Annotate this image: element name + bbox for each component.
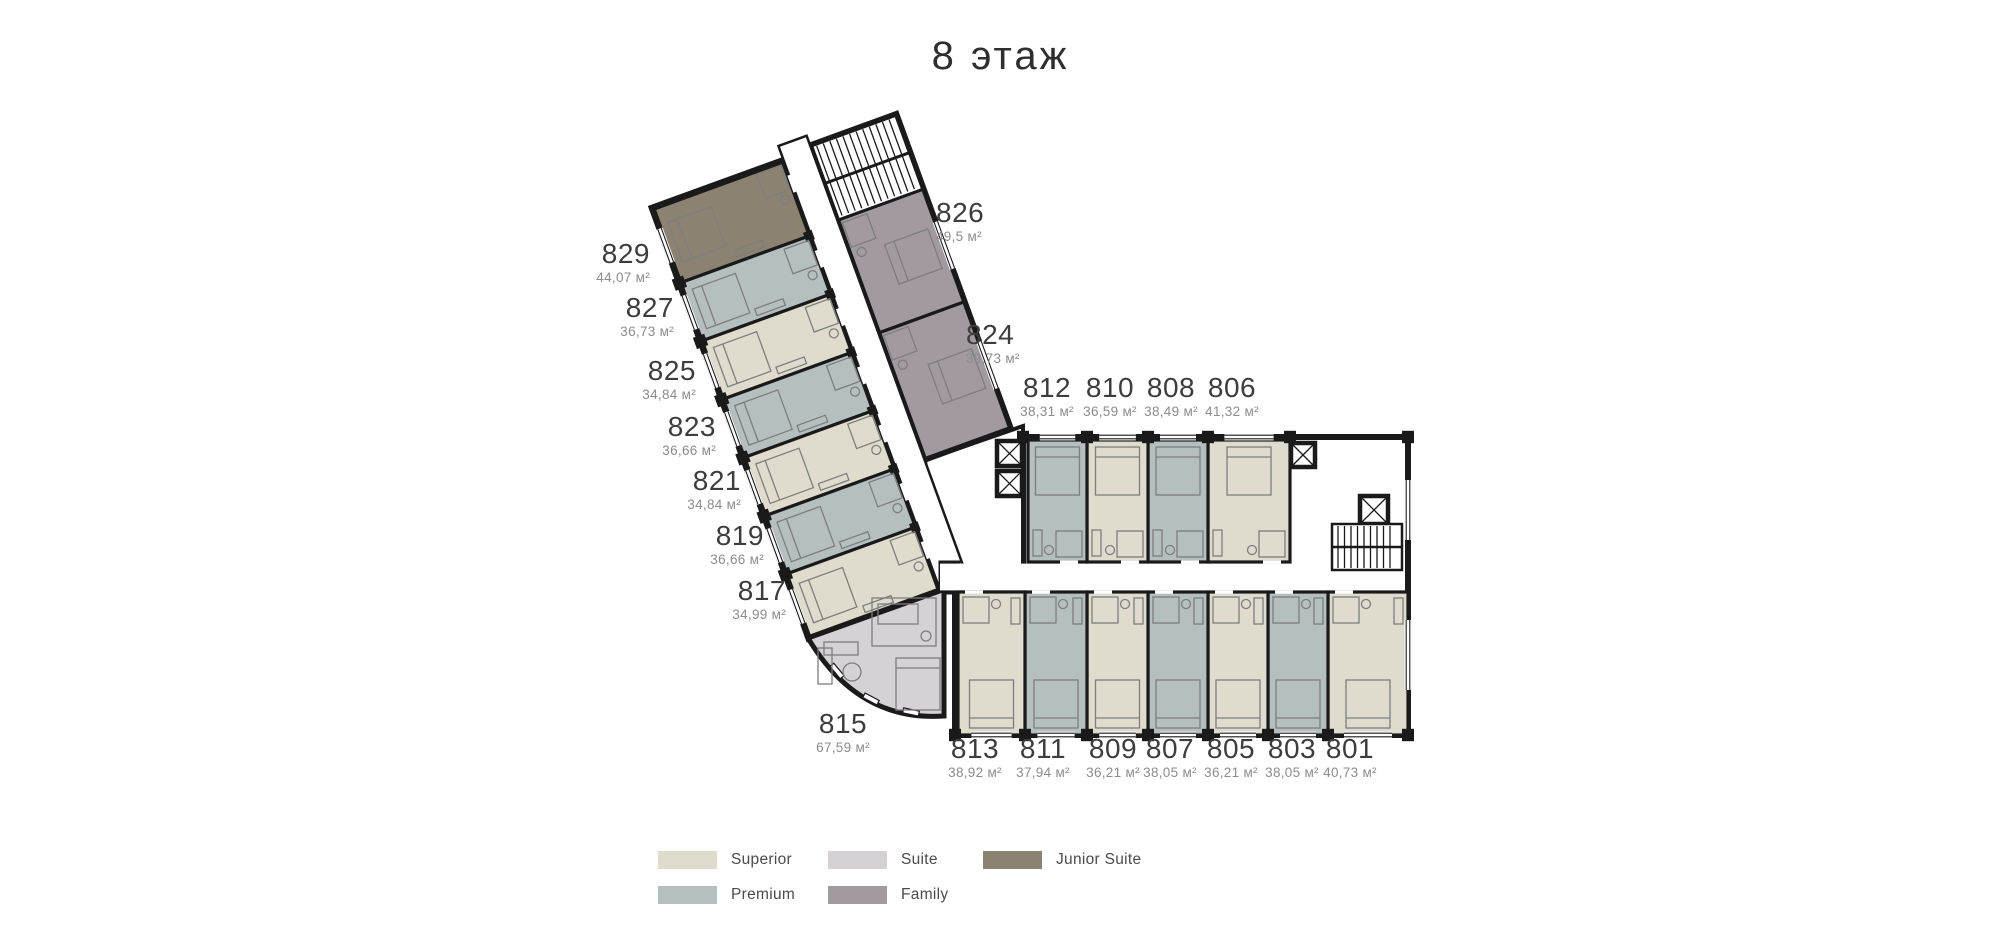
legend-item-family: Family: [828, 877, 983, 912]
room-805[interactable]: [1208, 592, 1268, 735]
legend-label-family: Family: [901, 886, 948, 904]
room-area-824: 39,73 м²: [966, 351, 1020, 366]
room-area-823: 36,66 м²: [662, 443, 716, 458]
legend-item-premium: Premium: [658, 877, 828, 912]
elevator-icon: [997, 471, 1022, 496]
legend-label-junior_suite: Junior Suite: [1056, 851, 1141, 869]
room-area-809: 36,21 м²: [1086, 765, 1140, 780]
room-area-815: 67,59 м²: [816, 740, 870, 755]
room-number-809: 809: [1089, 733, 1137, 764]
room-number-810: 810: [1086, 372, 1134, 403]
room-area-817: 34,99 м²: [732, 607, 786, 622]
legend-swatch-premium: [658, 886, 717, 904]
legend-label-premium: Premium: [731, 886, 795, 904]
legend: SuperiorPremiumSuiteFamilyJunior Suite: [658, 842, 1141, 912]
room-806[interactable]: [1208, 440, 1290, 562]
room-area-801: 40,73 м²: [1323, 765, 1377, 780]
room-area-829: 44,07 м²: [596, 270, 650, 285]
room-number-808: 808: [1147, 372, 1195, 403]
room-area-805: 36,21 м²: [1204, 765, 1258, 780]
room-number-812: 812: [1023, 372, 1071, 403]
room-area-826: 49,5 м²: [936, 229, 982, 244]
room-number-823: 823: [668, 411, 716, 442]
room-number-807: 807: [1146, 733, 1194, 764]
elevator-icon: [997, 441, 1022, 466]
room-number-824: 824: [966, 319, 1014, 350]
room-number-821: 821: [693, 465, 741, 496]
legend-label-suite: Suite: [901, 851, 938, 869]
room-number-819: 819: [716, 520, 764, 551]
room-number-801: 801: [1326, 733, 1374, 764]
elevator-icon: [1360, 496, 1388, 524]
room-number-811: 811: [1020, 733, 1066, 764]
legend-swatch-family: [828, 886, 887, 904]
room-number-815: 815: [819, 708, 867, 739]
room-area-827: 36,73 м²: [620, 324, 674, 339]
room-area-811: 37,94 м²: [1016, 765, 1070, 780]
legend-item-junior_suite: Junior Suite: [983, 842, 1141, 877]
legend-item-superior: Superior: [658, 842, 828, 877]
room-area-808: 38,49 м²: [1144, 404, 1198, 419]
floor-plan-page: 8 этаж 82944,07 м²82736,73 м²82534,84 м²…: [0, 0, 2001, 927]
room-number-829: 829: [602, 238, 650, 269]
legend-label-superior: Superior: [731, 851, 792, 869]
room-area-807: 38,05 м²: [1143, 765, 1197, 780]
room-number-805: 805: [1207, 733, 1255, 764]
legend-swatch-superior: [658, 851, 717, 869]
room-number-817: 817: [738, 575, 786, 606]
room-807[interactable]: [1148, 592, 1208, 735]
room-area-813: 38,92 м²: [948, 765, 1002, 780]
room-803[interactable]: [1268, 592, 1328, 735]
room-812[interactable]: [1028, 440, 1087, 562]
room-area-821: 34,84 м²: [687, 497, 741, 512]
legend-swatch-junior_suite: [983, 851, 1042, 869]
legend-swatch-suite: [828, 851, 887, 869]
room-813[interactable]: [958, 592, 1025, 735]
room-number-803: 803: [1268, 733, 1316, 764]
room-number-825: 825: [648, 355, 696, 386]
legend-item-suite: Suite: [828, 842, 983, 877]
floor-plan: 82944,07 м²82736,73 м²82534,84 м²82336,6…: [0, 0, 2001, 927]
room-area-803: 38,05 м²: [1265, 765, 1319, 780]
room-area-812: 38,31 м²: [1020, 404, 1074, 419]
room-area-806: 41,32 м²: [1205, 404, 1259, 419]
room-area-819: 36,66 м²: [710, 552, 764, 567]
room-number-827: 827: [626, 292, 674, 323]
room-number-826: 826: [936, 197, 984, 228]
elevator-icon: [1291, 443, 1315, 467]
room-808[interactable]: [1148, 440, 1208, 562]
room-area-825: 34,84 м²: [642, 387, 696, 402]
room-number-813: 813: [951, 733, 999, 764]
room-801[interactable]: [1328, 592, 1408, 735]
stairs-icon: [1332, 524, 1402, 570]
room-area-810: 36,59 м²: [1083, 404, 1137, 419]
room-number-806: 806: [1208, 372, 1256, 403]
